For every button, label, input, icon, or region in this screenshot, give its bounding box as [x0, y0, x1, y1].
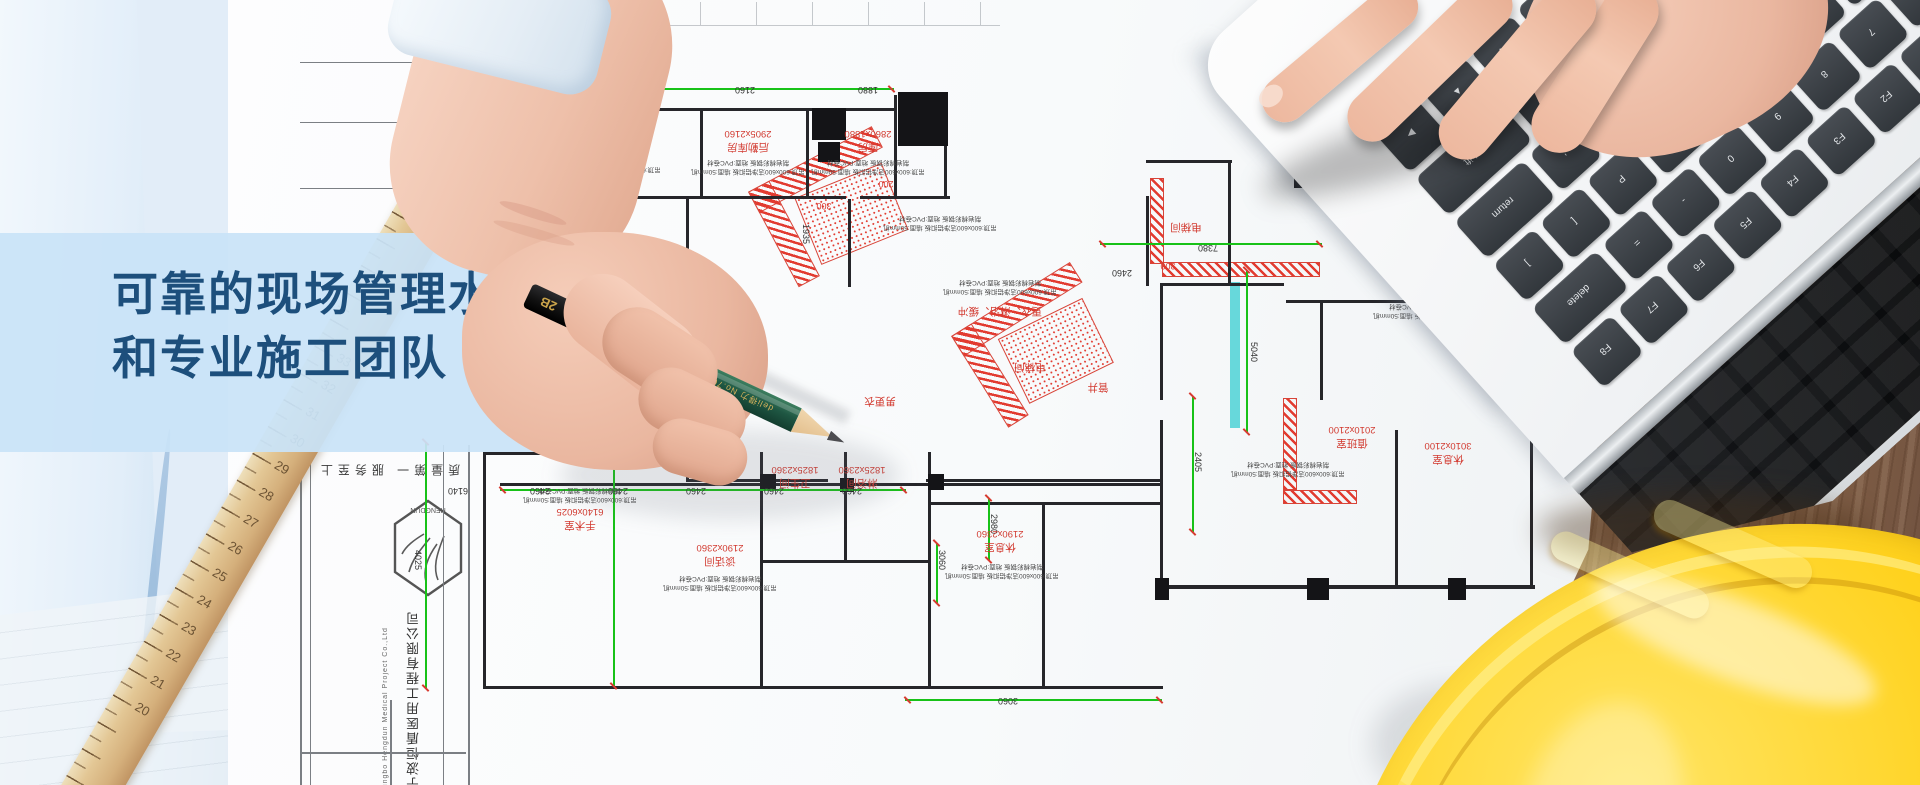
room-name: 男更衣	[864, 395, 896, 407]
room-name: 电梯间	[1170, 221, 1202, 233]
wall-segment	[700, 108, 703, 198]
room-label: 休息室3010x2100	[1424, 439, 1471, 465]
room-label: 管井	[1088, 379, 1109, 393]
key-legend: 7	[1847, 9, 1894, 53]
key-legend: F4	[1768, 158, 1815, 202]
ruler-number: 28	[256, 484, 276, 504]
dimension-label: 200	[878, 179, 893, 189]
room-size: 3010x2100	[1424, 439, 1471, 451]
svg-text:HENGDUN: HENGDUN	[410, 506, 445, 513]
wall-segment	[483, 686, 1163, 689]
ruler-number: 21	[148, 672, 168, 692]
key-legend: F7	[1628, 285, 1675, 329]
room-label: 更衣、淋浴、缓冲	[958, 303, 1042, 317]
room-label: 休息室2190x2360	[976, 527, 1023, 553]
key-legend: F5	[1722, 200, 1769, 244]
room-label: 库房2860x1880	[844, 127, 891, 153]
dimension-line	[905, 699, 1162, 701]
room-name: 休息室	[1432, 453, 1464, 465]
room-size: 2010x2100	[1328, 423, 1375, 435]
dimension-label: 5040	[1249, 342, 1259, 362]
finish-spec-note: 吊顶:600x600洁净铝扣板 墙面:50mm机制岩棉彩钢板 地面:PVC卷材	[689, 157, 807, 175]
wall-segment	[894, 95, 897, 198]
finish-spec-note: 吊顶:600x600洁净铝扣板 墙面:50mm机制岩棉彩钢板 地面:PVC卷材	[809, 157, 927, 175]
dimension-label: 6140	[448, 486, 468, 496]
room-label: 电梯间	[1014, 359, 1046, 373]
pencil-lead-tip	[827, 431, 847, 447]
room-name: 电梯间	[1014, 361, 1046, 373]
company-name-en: Ningbo Hengdun Medical Project Co.,Ltd	[382, 612, 389, 785]
hatched-wall	[1283, 490, 1357, 504]
dimension-line	[1246, 270, 1248, 432]
room-name: 休息室	[984, 541, 1016, 553]
hatched-wall	[1162, 262, 1320, 277]
wall-segment	[926, 479, 1162, 482]
room-name: 后勤库房	[727, 141, 769, 153]
room-name: 更衣、淋浴、缓冲	[958, 305, 1042, 317]
room-size: 6140x6025	[556, 505, 603, 517]
dimension-label: 2160	[735, 85, 755, 95]
key-legend: F1	[1909, 32, 1920, 76]
dimension-label: 1935	[801, 224, 811, 244]
room-label: 电梯间	[1170, 219, 1202, 233]
room-label: 值班室2010x2100	[1328, 423, 1375, 449]
dimension-label: 300	[816, 201, 831, 211]
quality-slogan: 质量第一 服务至上	[316, 462, 460, 479]
room-size: 2190x2360	[696, 541, 743, 553]
room-label: 谈话间2190x2360	[696, 541, 743, 567]
frame-line	[443, 445, 444, 785]
room-name: 值班室	[1336, 437, 1368, 449]
wall-segment	[860, 196, 950, 199]
key-legend: F3	[1815, 116, 1862, 160]
structural-column	[812, 108, 846, 140]
wall-segment	[1160, 283, 1163, 400]
structural-column	[928, 474, 944, 490]
wall-segment	[1146, 196, 1149, 286]
key-legend: [	[1550, 198, 1597, 242]
frame-line	[390, 700, 392, 785]
wall-segment	[806, 108, 809, 198]
ruler-number: 22	[163, 645, 183, 665]
ruler-number: 29	[272, 457, 292, 477]
finish-spec-note: 吊顶:600x600洁净铝扣板 墙面:50mm机制岩棉彩钢板 地面:PVC卷材	[661, 573, 779, 591]
wall-segment	[1146, 160, 1232, 163]
structural-column	[1448, 578, 1466, 600]
wall-segment	[1042, 505, 1045, 688]
wall-segment	[1162, 283, 1284, 286]
finish-spec-note: 吊顶:600x600洁净铝扣板 墙面:50mm机制岩棉彩钢板 地面:PVC卷材	[941, 277, 1059, 295]
company-name-cn: 宁波恒盾医用工程有限公司	[404, 610, 423, 785]
key-legend: F2	[1862, 74, 1909, 118]
structural-column	[898, 92, 948, 146]
room-name: 手术室	[564, 519, 596, 531]
wall-segment	[1160, 585, 1535, 589]
room-name: 管井	[1088, 381, 1109, 393]
finish-spec-note: 吊顶:600x600洁净铝扣板 墙面:50mm机制岩棉彩钢板 地面:PVC卷材	[881, 213, 999, 231]
hengdun-logo: HENGDUN	[392, 498, 464, 598]
frame-line	[468, 445, 470, 785]
ruler-number: 23	[179, 618, 199, 638]
ruler-number: 27	[241, 511, 261, 531]
ruler-number: 20	[132, 699, 152, 719]
room-label: 男更衣	[864, 393, 896, 407]
hatched-wall	[1150, 178, 1164, 264]
dimension-label: 1880	[858, 85, 878, 95]
structural-column	[1307, 578, 1329, 600]
ruler-number: 26	[225, 538, 245, 558]
key-legend: P	[1597, 156, 1644, 200]
wall-segment	[928, 502, 1162, 505]
dimension-line	[425, 442, 427, 688]
key-legend: -	[1660, 178, 1707, 222]
wall-segment	[848, 199, 851, 287]
frame-line	[300, 430, 302, 785]
wall-segment	[1320, 300, 1323, 400]
frame-line	[302, 752, 466, 754]
room-label: 后勤库房2905x2160	[724, 127, 771, 153]
room-size: 2190x2360	[976, 527, 1023, 539]
key-legend: F6	[1675, 243, 1722, 287]
highlight-strip	[1230, 282, 1240, 428]
finish-spec-note: 吊顶:600x600洁净铝扣板 墙面:50mm机制岩棉彩钢板 地面:PVC卷材	[943, 561, 1061, 579]
wall-segment	[1395, 430, 1398, 588]
room-label: 手术室6140x6025	[556, 505, 603, 531]
frame-line	[310, 430, 311, 785]
dimension-label: 2405	[1193, 452, 1203, 472]
key-legend: F8	[1581, 327, 1628, 371]
wall-segment	[1228, 160, 1231, 286]
wall-segment	[760, 560, 930, 563]
finish-spec-note: 吊顶:600x600洁净铝扣板 墙面:50mm机制岩棉彩钢板 地面:PVC卷材	[1229, 459, 1347, 477]
ruler-number: 25	[210, 565, 230, 585]
wall-segment	[483, 452, 486, 688]
pencil-grade-label: 2B	[538, 294, 559, 315]
room-name: 库房	[858, 141, 879, 153]
dimension-label: 2460	[1112, 268, 1132, 278]
key-legend: =	[1613, 220, 1660, 264]
dimension-label: 3060	[998, 696, 1018, 706]
ruler-number: 24	[194, 592, 214, 612]
key-legend: 6	[1894, 0, 1920, 11]
room-name: 谈话间	[704, 555, 736, 567]
structural-column	[1155, 578, 1169, 600]
dimension-label: 7380	[1198, 243, 1218, 253]
key-legend: ]	[1503, 241, 1550, 285]
room-size: 2860x1880	[844, 127, 891, 139]
key-legend: 0	[1707, 136, 1754, 180]
room-size: 2905x2160	[724, 127, 771, 139]
hero-banner: 质量第一 服务至上 HENGDUN 宁波恒盾医用工程有限公司 Ningbo He…	[0, 0, 1920, 785]
dimension-label: 4025	[413, 550, 423, 570]
dimension-label: 300	[1160, 261, 1175, 271]
